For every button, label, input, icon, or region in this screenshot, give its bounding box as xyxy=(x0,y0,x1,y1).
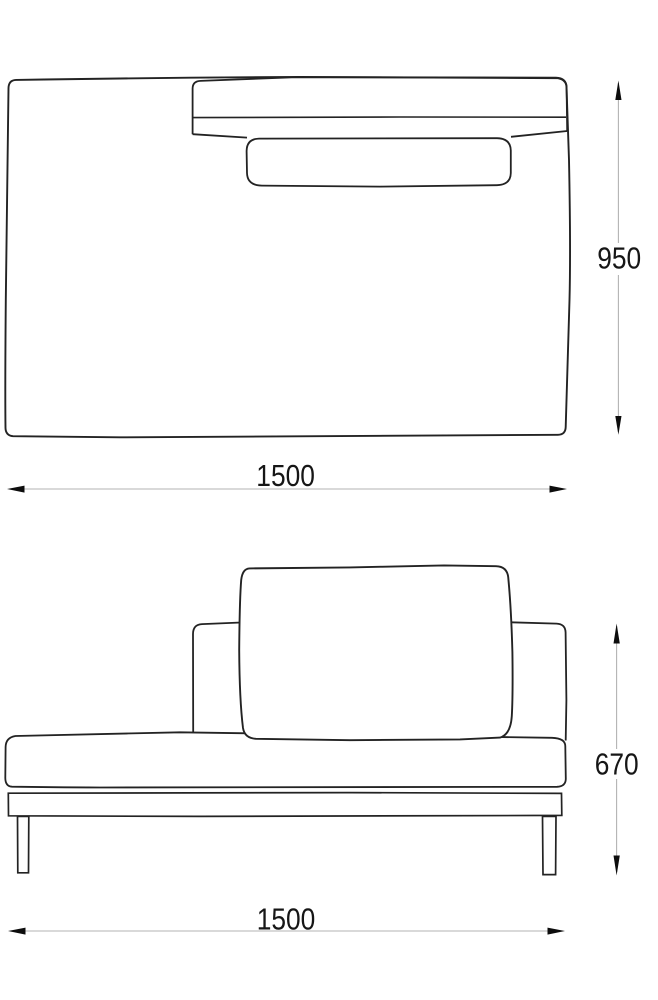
svg-text:670: 670 xyxy=(595,748,639,782)
svg-text:1500: 1500 xyxy=(256,459,315,493)
svg-text:950: 950 xyxy=(597,242,641,276)
svg-text:1500: 1500 xyxy=(257,903,316,937)
